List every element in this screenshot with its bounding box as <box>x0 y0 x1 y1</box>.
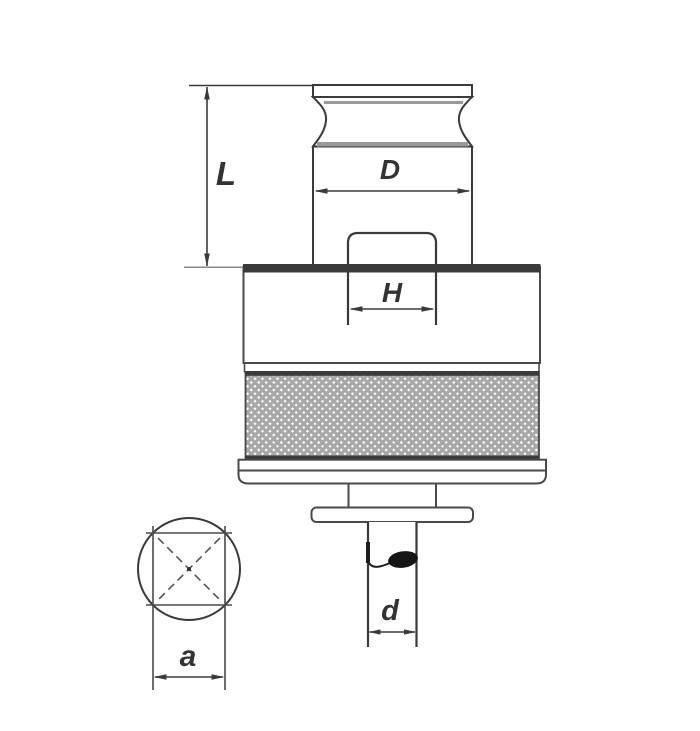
dimension-label-a: a <box>180 640 197 673</box>
dimension-label-L: L <box>216 155 236 192</box>
knurl-top-edge <box>245 371 539 376</box>
top-flange <box>313 85 472 97</box>
dimension-label-D: D <box>380 154 400 185</box>
shank-face <box>369 522 416 647</box>
knurl-surface <box>246 373 540 460</box>
knurl-band <box>245 363 540 460</box>
center-mark <box>187 567 191 571</box>
technical-drawing-page: L D H d a <box>0 0 700 731</box>
spigot <box>349 484 437 508</box>
bottom-cap <box>239 471 547 484</box>
neck-accent-line <box>317 142 468 147</box>
shank <box>368 522 419 647</box>
dimension-label-H: H <box>382 277 403 308</box>
neck-accent-line <box>324 101 463 104</box>
shank-collar <box>312 508 474 523</box>
body-top-edge <box>243 264 541 273</box>
dimension-label-d: d <box>381 595 400 627</box>
neck-groove <box>313 97 472 147</box>
tapping-adapter-drawing: L D H d a <box>0 0 700 731</box>
lower-ring <box>239 460 547 471</box>
